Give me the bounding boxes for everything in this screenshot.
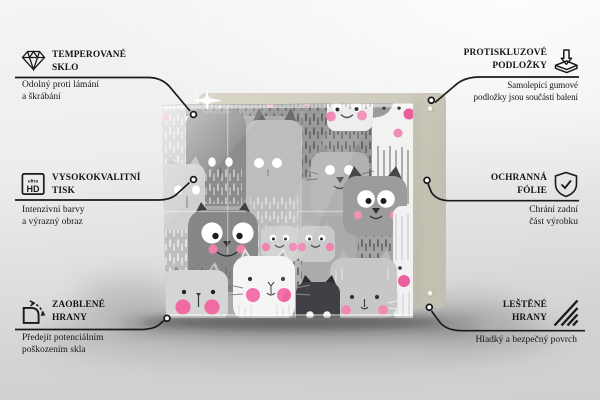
svg-text:HD: HD — [27, 184, 40, 194]
